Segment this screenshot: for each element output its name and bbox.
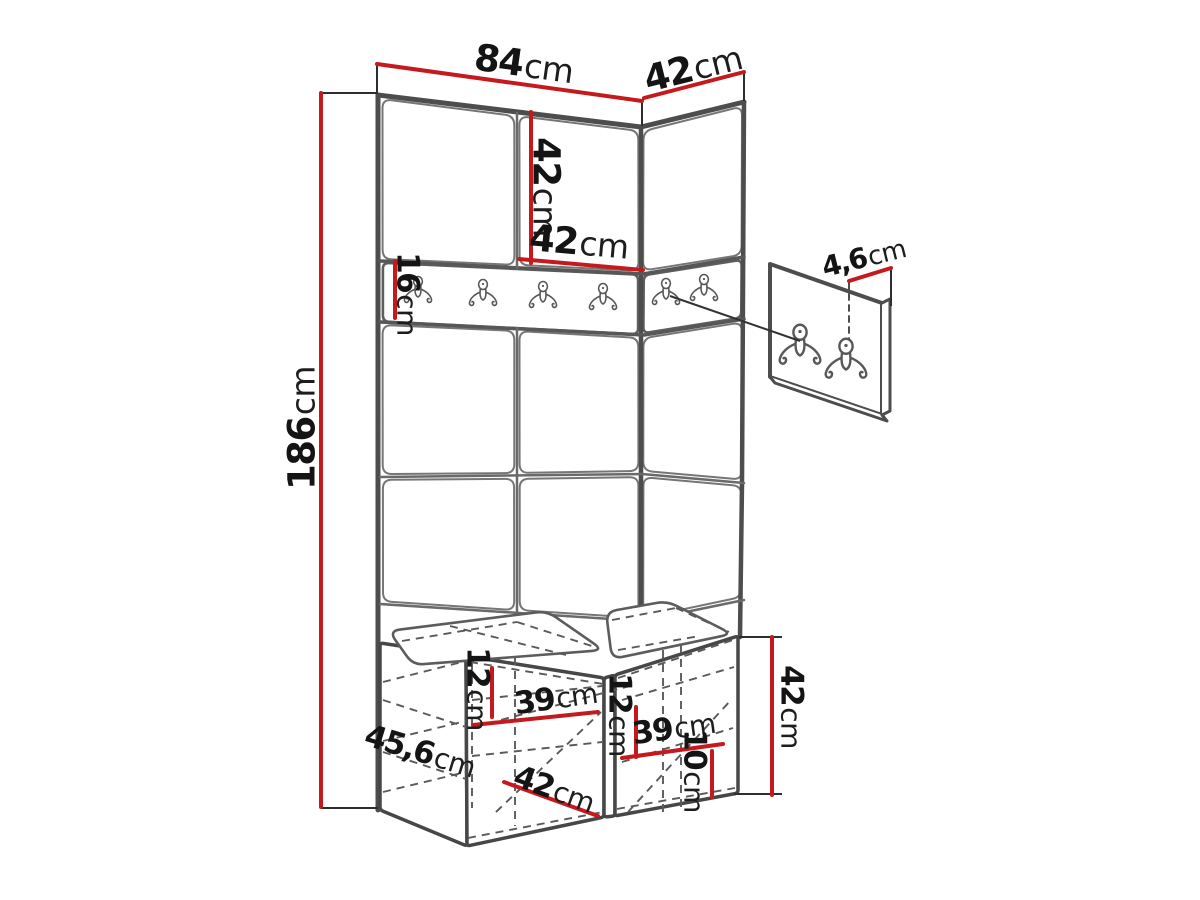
bench-body-face <box>466 656 604 845</box>
upholstered-panel <box>382 100 514 264</box>
upholstered-panel <box>383 479 514 610</box>
upholstered-panel <box>643 108 742 269</box>
upholstered-panel <box>520 477 639 617</box>
shoe-bench <box>380 637 738 846</box>
upholstered-panel <box>519 117 638 270</box>
dimension-line <box>377 64 642 101</box>
dimension-line <box>849 268 891 281</box>
bench-body-face <box>615 637 738 816</box>
bench-body-face <box>380 643 467 845</box>
upholstered-panel <box>520 332 639 473</box>
furniture-dimension-diagram <box>0 0 1200 900</box>
upholstered-panel <box>643 324 742 479</box>
wall-panel-grid <box>382 100 742 617</box>
wall-hook-panel <box>770 264 890 421</box>
diagram-canvas: 84cm42cm42cm42cm16cm186cm4,6cm12cm39cm45… <box>0 0 1200 900</box>
upholstered-panel <box>643 478 741 616</box>
upholstered-panel <box>383 325 515 474</box>
dimension-line <box>644 72 744 98</box>
